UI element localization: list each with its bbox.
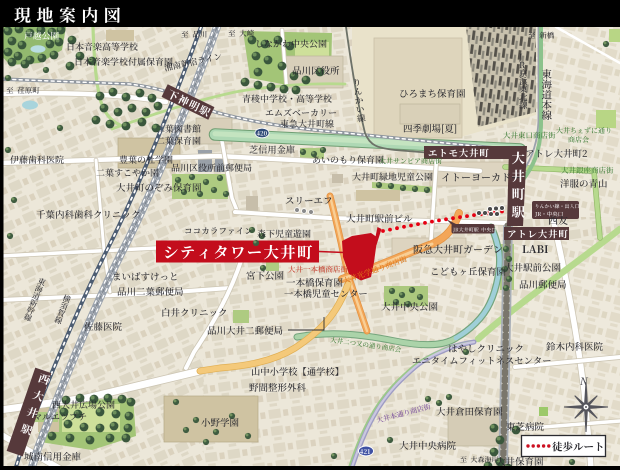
svg-text:N: N [579, 376, 589, 388]
